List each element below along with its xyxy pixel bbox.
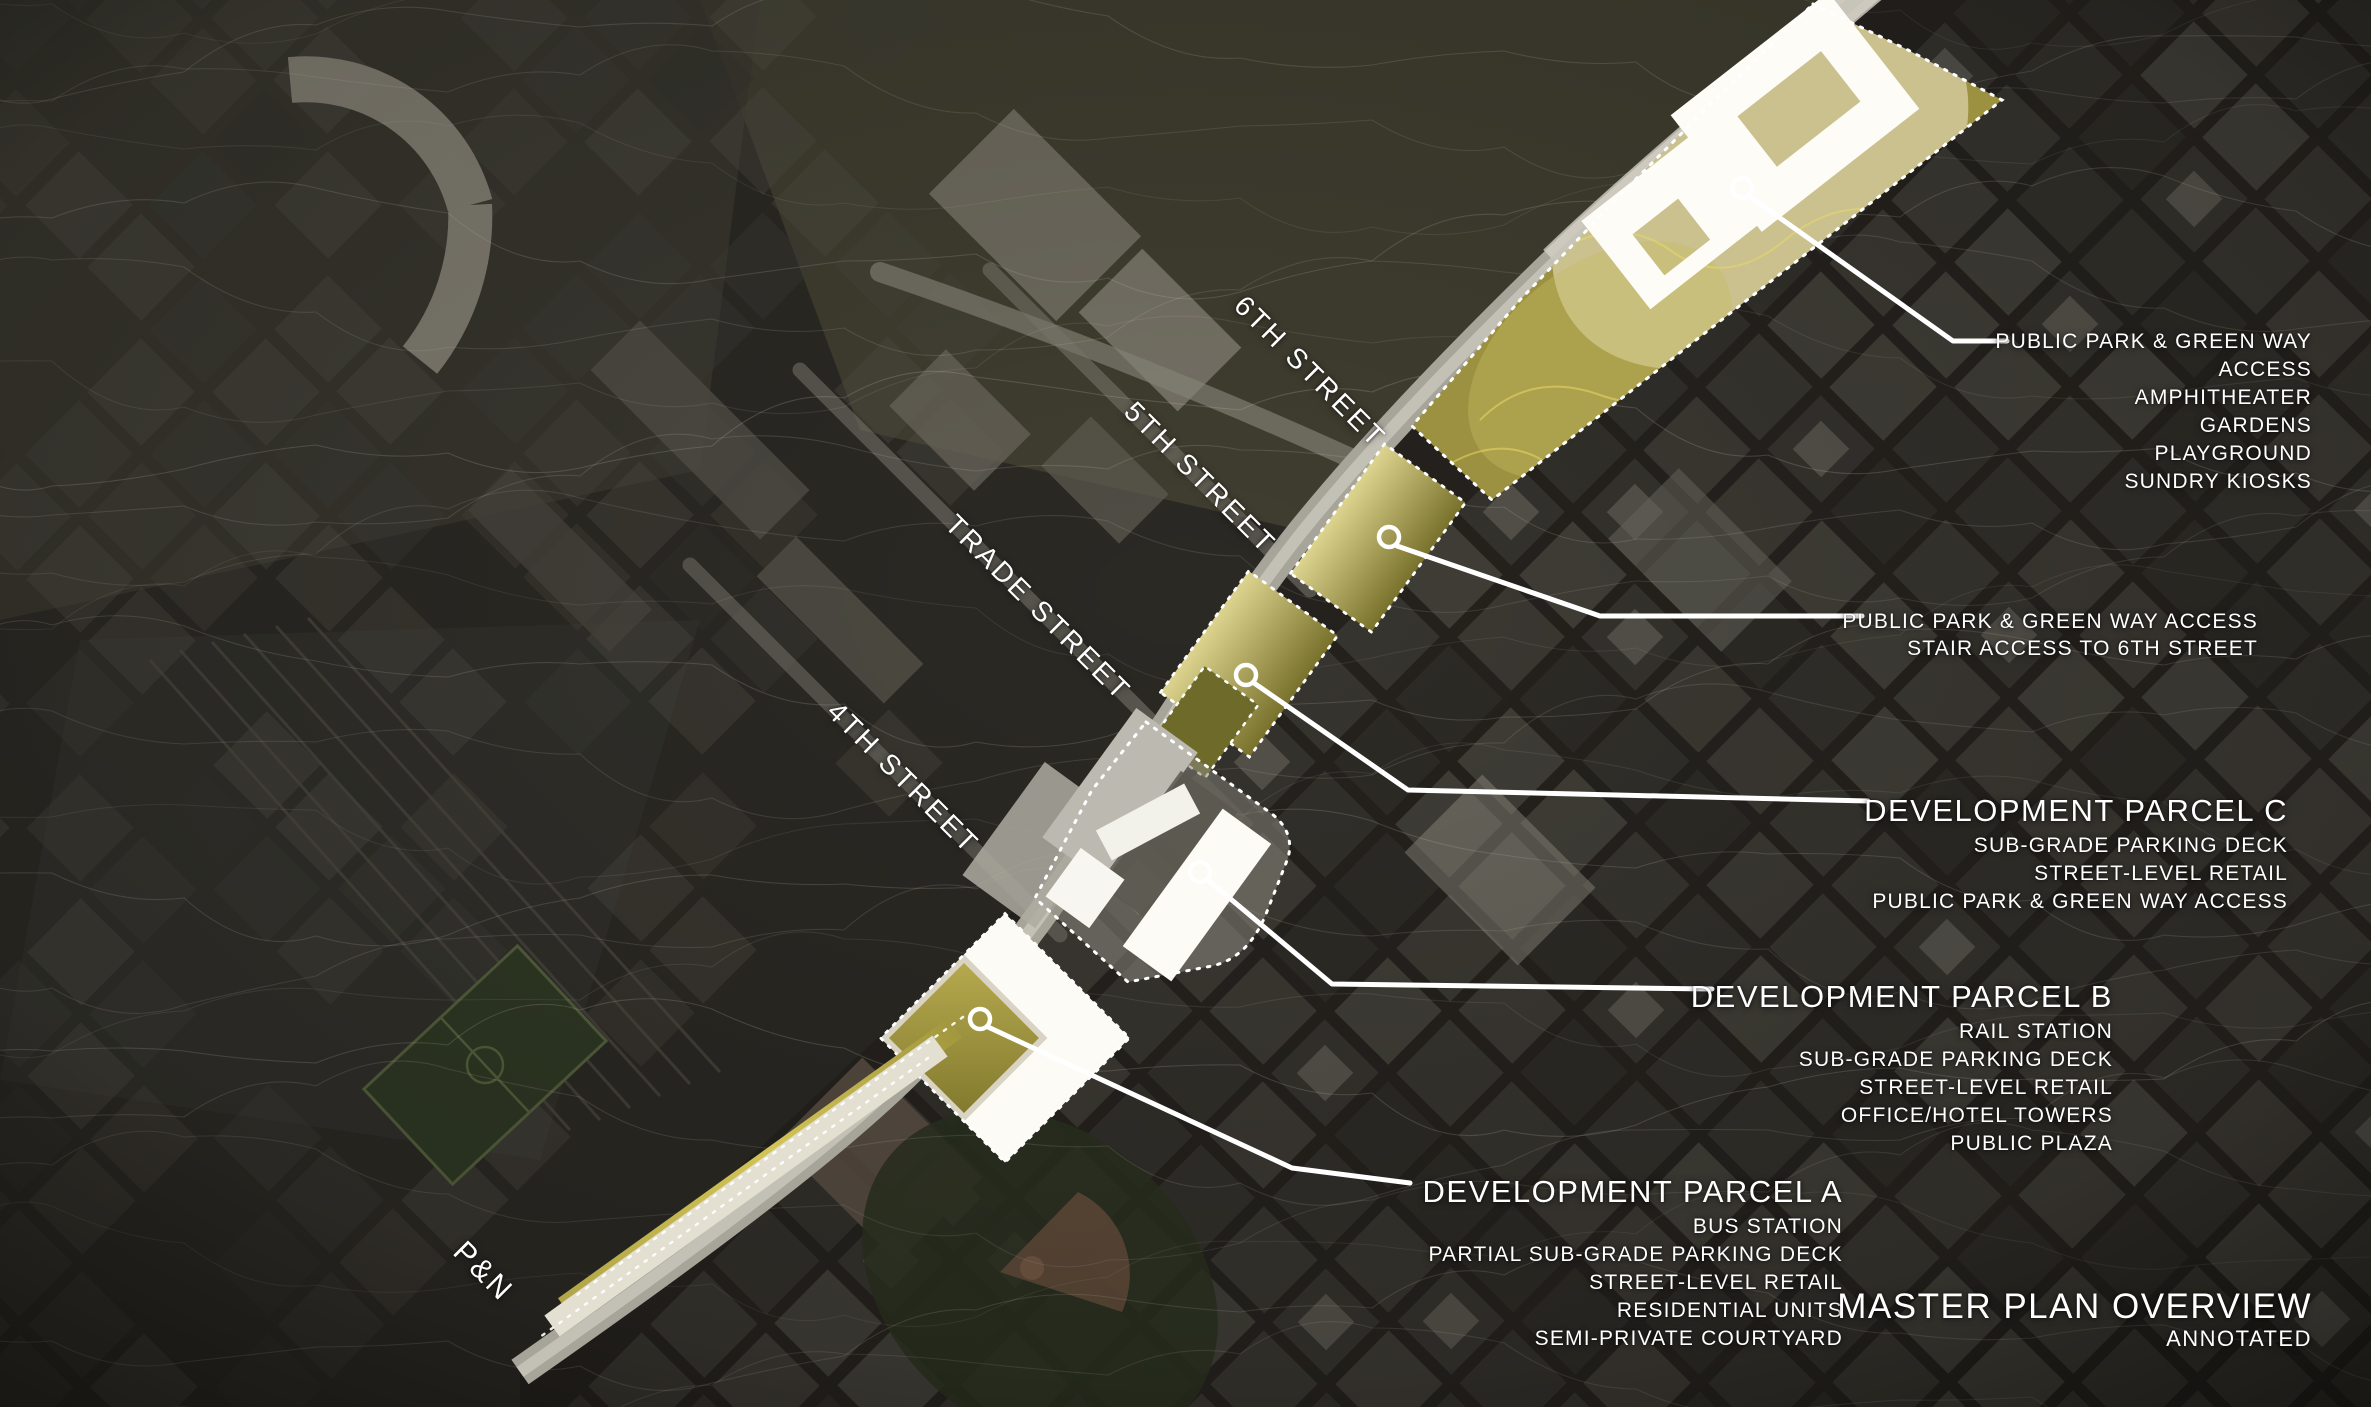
annotation-line: SUB-GRADE PARKING DECK bbox=[1691, 1046, 2113, 1074]
annotation-line: SUNDRY KIOSKS bbox=[1995, 468, 2312, 496]
annotation-line: STAIR ACCESS TO 6TH STREET bbox=[1842, 635, 2258, 662]
annotation-line: PUBLIC PARK & GREEN WAY ACCESS bbox=[1842, 608, 2258, 635]
annotation-line: SUB-GRADE PARKING DECK bbox=[1864, 832, 2288, 860]
parcel-b-title: DEVELOPMENT PARCEL B bbox=[1691, 980, 2113, 1014]
annotation-line: PUBLIC PLAZA bbox=[1691, 1130, 2113, 1158]
annotation-park-access: PUBLIC PARK & GREEN WAY ACCESS STAIR ACC… bbox=[1842, 608, 2258, 662]
annotation-line: STREET-LEVEL RETAIL bbox=[1864, 860, 2288, 888]
annotation-line: GARDENS bbox=[1995, 412, 2312, 440]
page-subtitle: ANNOTATED bbox=[1837, 1326, 2312, 1352]
parcel-a-title: DEVELOPMENT PARCEL A bbox=[1423, 1175, 1844, 1209]
annotation-line: STREET-LEVEL RETAIL bbox=[1423, 1269, 1844, 1297]
annotation-line: BUS STATION bbox=[1423, 1213, 1844, 1241]
annotation-line: STREET-LEVEL RETAIL bbox=[1691, 1074, 2113, 1102]
annotation-line: OFFICE/HOTEL TOWERS bbox=[1691, 1102, 2113, 1130]
annotation-line: RAIL STATION bbox=[1691, 1018, 2113, 1046]
page-title: MASTER PLAN OVERVIEW bbox=[1837, 1288, 2312, 1326]
annotation-line: AMPHITHEATER bbox=[1995, 384, 2312, 412]
annotation-line: PARTIAL SUB-GRADE PARKING DECK bbox=[1423, 1241, 1844, 1269]
annotation-line: PUBLIC PARK & GREEN WAY bbox=[1995, 328, 2312, 356]
map-title-block: MASTER PLAN OVERVIEW ANNOTATED bbox=[1837, 1288, 2312, 1352]
aerial-map-svg bbox=[0, 0, 2371, 1407]
annotation-line: ACCESS bbox=[1995, 356, 2312, 384]
annotation-line: PLAYGROUND bbox=[1995, 440, 2312, 468]
annotation-line: SEMI-PRIVATE COURTYARD bbox=[1423, 1325, 1844, 1353]
annotation-line: RESIDENTIAL UNITS bbox=[1423, 1297, 1844, 1325]
annotation-line: PUBLIC PARK & GREEN WAY ACCESS bbox=[1864, 888, 2288, 916]
annotation-parcel-b: DEVELOPMENT PARCEL B RAIL STATION SUB-GR… bbox=[1691, 980, 2113, 1158]
annotation-park-north: PUBLIC PARK & GREEN WAY ACCESS AMPHITHEA… bbox=[1995, 328, 2312, 496]
annotation-parcel-c: DEVELOPMENT PARCEL C SUB-GRADE PARKING D… bbox=[1864, 794, 2288, 916]
annotation-parcel-a: DEVELOPMENT PARCEL A BUS STATION PARTIAL… bbox=[1423, 1175, 1844, 1353]
parcel-c-title: DEVELOPMENT PARCEL C bbox=[1864, 794, 2288, 828]
master-plan-map: 6TH STREET 5TH STREET TRADE STREET 4TH S… bbox=[0, 0, 2371, 1407]
